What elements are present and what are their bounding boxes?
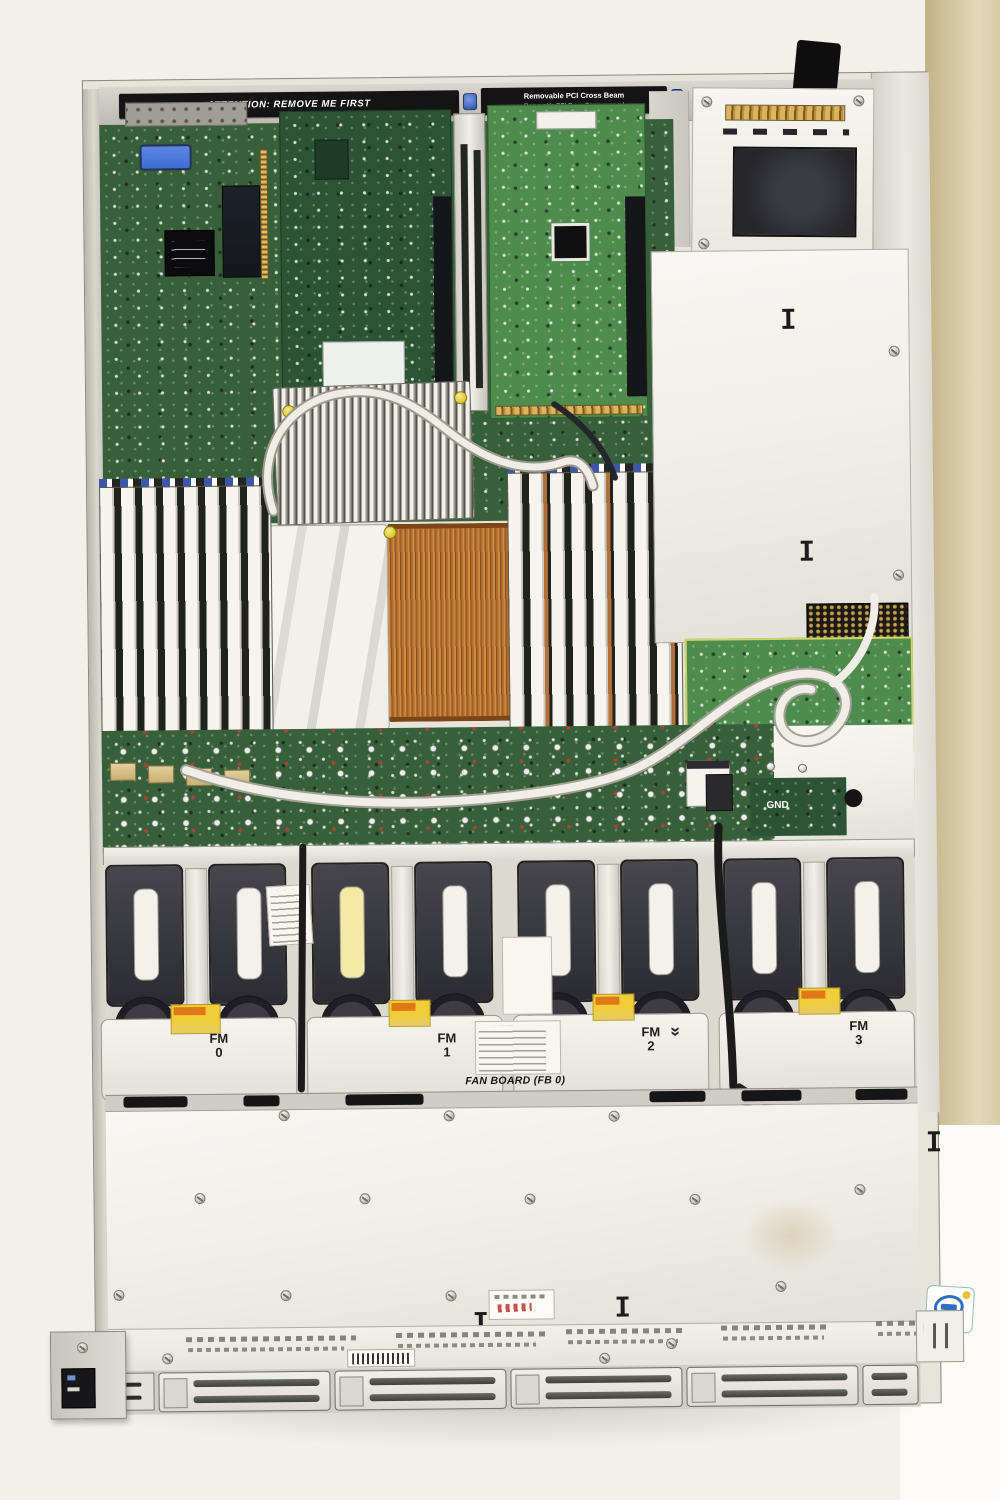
front-screw (599, 1353, 610, 1364)
tray-vent-slot (370, 1393, 496, 1401)
drive-tray (686, 1365, 858, 1407)
tray-vent-slot (194, 1395, 320, 1403)
indicator-pixel (67, 1375, 75, 1380)
cover-screw (854, 1184, 865, 1195)
cover-screw (609, 1111, 620, 1122)
tray-latch (515, 1374, 539, 1404)
cover-slot-handle (621, 1299, 625, 1315)
white-cable-tail (832, 597, 875, 683)
cover-screw (689, 1194, 700, 1205)
tray-vent-slot (193, 1379, 319, 1387)
drive-cage-cover (106, 1103, 920, 1329)
indicator-pixel (67, 1387, 79, 1391)
tray-latch (339, 1376, 363, 1406)
fan-board-connector (243, 1095, 279, 1106)
etched-text-group (721, 1320, 831, 1345)
cover-screw (280, 1290, 291, 1301)
tray-vent-slot (546, 1391, 672, 1399)
cover-screw (359, 1193, 370, 1204)
drive-tray (158, 1371, 330, 1413)
fan-board-connector (741, 1090, 801, 1102)
fan-board-connector (855, 1089, 907, 1101)
white-cable-cpu (267, 389, 594, 511)
photo-stage: ← ATTENTION: REMOVE ME FIRST Removable P… (0, 0, 1000, 1500)
tray-latch (691, 1373, 715, 1403)
cover-screw (775, 1281, 786, 1292)
badge-corner (962, 1291, 970, 1299)
etched-text-group (186, 1331, 356, 1357)
drive-tray (862, 1365, 918, 1406)
tray-vent-slot (871, 1373, 907, 1380)
server-chassis: ← ATTENTION: REMOVE ME FIRST Removable P… (82, 71, 942, 1412)
black-cable-right (718, 826, 733, 1086)
tray-vent-slot (872, 1389, 908, 1396)
ear-screw (77, 1342, 88, 1353)
black-cable-left (299, 847, 306, 1089)
front-screw (666, 1338, 677, 1349)
inventory-sticker (488, 1289, 554, 1320)
front-bezel (96, 1363, 920, 1416)
cover-screw (524, 1194, 535, 1205)
cable-connector (706, 774, 732, 810)
etched-text-group (396, 1327, 546, 1353)
tray-vent-slot (722, 1389, 848, 1397)
barcode-label (347, 1349, 415, 1368)
drive-tray (334, 1369, 506, 1411)
rack-ear-left (50, 1331, 127, 1420)
tray-latch (163, 1378, 187, 1408)
cover-screw (444, 1110, 455, 1121)
tray-vent-slot (721, 1373, 847, 1381)
tray-vent-slot (545, 1375, 671, 1383)
ear-display-module (61, 1368, 95, 1408)
cover-screw (445, 1290, 456, 1301)
cover-screw (279, 1110, 290, 1121)
cover-stain (743, 1198, 840, 1271)
white-cable-cpu (267, 389, 594, 511)
cover-screw (194, 1193, 205, 1204)
drive-tray (510, 1367, 682, 1409)
fan-board-connector (123, 1096, 187, 1108)
rack-ear-right (916, 1310, 965, 1362)
white-cable-loop (185, 673, 847, 805)
cover-screw (113, 1290, 124, 1301)
fan-board-connector (649, 1091, 705, 1103)
cover-slot-handle (932, 1133, 936, 1149)
sticker-marks (495, 1294, 547, 1299)
sticker-red-marks (498, 1303, 532, 1313)
fan-board-connector (345, 1094, 423, 1106)
fan-board-silkscreen: FAN BOARD (FB 0) (445, 1074, 585, 1091)
front-screw (162, 1353, 173, 1364)
tray-vent-slot (369, 1377, 495, 1385)
